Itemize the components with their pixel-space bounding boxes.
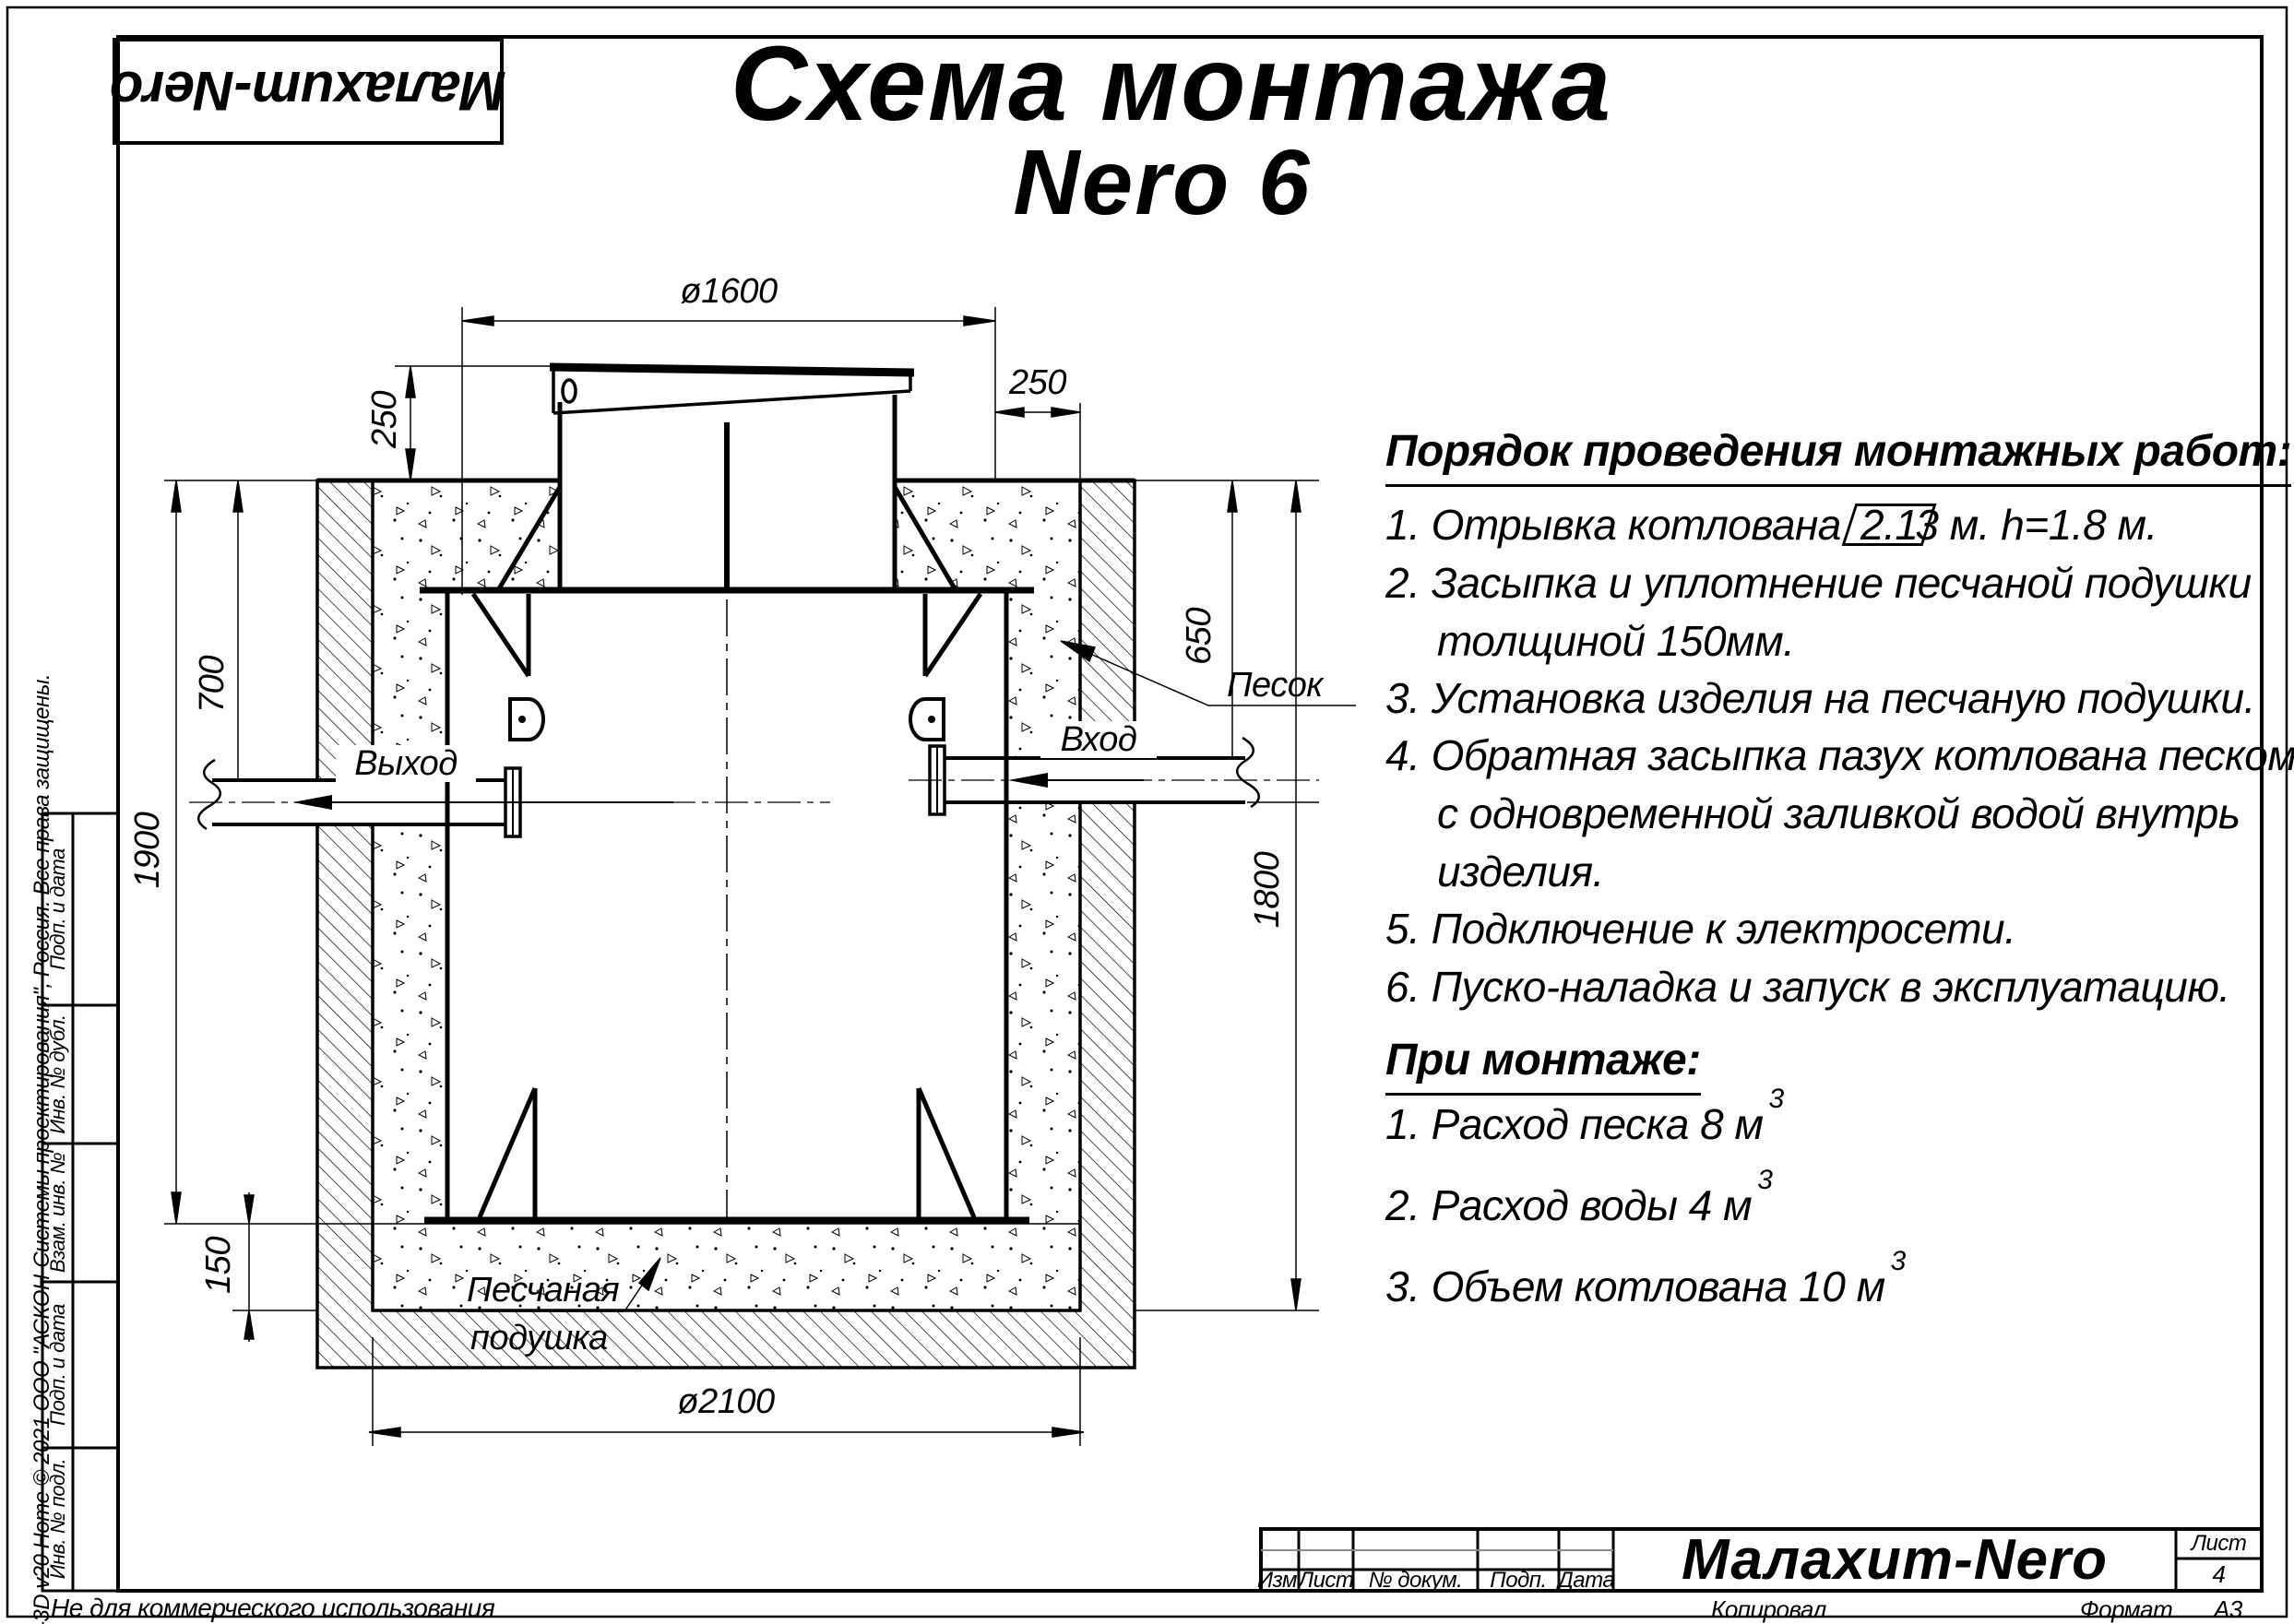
mounting-2: 2. Расход воды 4 м3 — [1385, 1180, 1772, 1230]
tb-format-label: Формат — [2080, 1595, 2172, 1624]
step-1-text: 1. Отрывка котлована — [1385, 501, 1841, 549]
step-4-line2: с одновременной заливкой водой внутрь — [1437, 788, 2241, 838]
dim-700: 700 — [194, 629, 231, 740]
tb-company-name: Малахит-Nero — [1613, 1529, 2176, 1591]
dim-1600: ø1600 — [673, 273, 784, 310]
square-dim-box: 2.1 — [1841, 504, 1936, 546]
cushion-label-line2: подушка — [470, 1319, 608, 1358]
drawing-sheet: Малахит-Nero Схема монтажа Nero 6 Порядо… — [0, 0, 2294, 1624]
dim-650: 650 — [1181, 581, 1218, 692]
step-1-tail: 3 м. h=1.8 м. — [1915, 501, 2157, 549]
tb-col-data: Дата — [1559, 1570, 1613, 1591]
page-title: Схема монтажа — [719, 33, 1623, 135]
tb-sheet-number: 4 — [2176, 1560, 2262, 1588]
square-dim-value: 2.1 — [1860, 506, 1918, 543]
step-4-line1: 4. Обратная засыпка пазух котлована песк… — [1385, 730, 2294, 780]
tb-sheet-label: Лист — [2176, 1531, 2262, 1557]
dim-150: 150 — [200, 1210, 237, 1321]
mounting-heading: При монтаже: — [1385, 1035, 1701, 1096]
mounting-2-text: 2. Расход воды 4 м — [1385, 1181, 1752, 1229]
dim-2100: ø2100 — [671, 1383, 781, 1420]
kompas-copyright: КОМПАС-3D v20 Home © 2021 ООО "АСКОН-Сис… — [26, 708, 59, 1624]
step-1: 1. Отрывка котлована2.13 м. h=1.8 м. — [1385, 500, 2157, 550]
tb-col-docnum: № докум. — [1353, 1570, 1478, 1591]
step-4-line3: изделия. — [1437, 847, 1604, 896]
mounting-3-text: 3. Объем котлована 10 м — [1385, 1262, 1885, 1310]
page-subtitle: Nero 6 — [904, 136, 1420, 229]
dim-250-left: 250 — [366, 364, 403, 475]
step-6: 6. Пуско-наладка и запуск в эксплуатацию… — [1385, 962, 2230, 1012]
step-2-line2: толщиной 150мм. — [1437, 616, 1794, 666]
dim-250-right: 250 — [982, 364, 1093, 401]
cushion-label-line1: Песчаная — [467, 1271, 619, 1310]
not-commercial-note: Не для коммерческого использования — [51, 1594, 494, 1623]
dim-1900: 1900 — [129, 795, 166, 906]
mounting-3: 3. Объем котлована 10 м3 — [1385, 1262, 1906, 1311]
tb-format-value: А3 — [2214, 1595, 2242, 1624]
tb-col-list: Лист — [1299, 1570, 1353, 1591]
outlet-label: Выход — [336, 745, 476, 782]
mounting-1-text: 1. Расход песка 8 м — [1385, 1100, 1764, 1148]
inlet-label: Вход — [1040, 721, 1157, 758]
mounting-1: 1. Расход песка 8 м3 — [1385, 1099, 1784, 1149]
step-3: 3. Установка изделия на песчаную подушки… — [1385, 673, 2255, 723]
tb-col-podp: Подп. — [1478, 1570, 1559, 1591]
steps-heading: Порядок проведения монтажных работ: — [1385, 426, 2291, 487]
mounting-2-sup: 3 — [1757, 1165, 1772, 1195]
logo-box: Малахит-Nero — [114, 40, 502, 143]
mounting-1-sup: 3 — [1769, 1084, 1784, 1114]
step-5: 5. Подключение к электросети. — [1385, 904, 2015, 954]
mounting-3-sup: 3 — [1891, 1246, 1906, 1276]
sand-label: Песок — [1227, 666, 1323, 705]
dim-1800: 1800 — [1249, 835, 1286, 945]
tb-copied: Копировал — [1711, 1595, 1826, 1624]
tb-col-izm: Изм. — [1261, 1570, 1299, 1591]
step-2-line1: 2. Засыпка и уплотнение песчаной подушки — [1385, 558, 2252, 608]
